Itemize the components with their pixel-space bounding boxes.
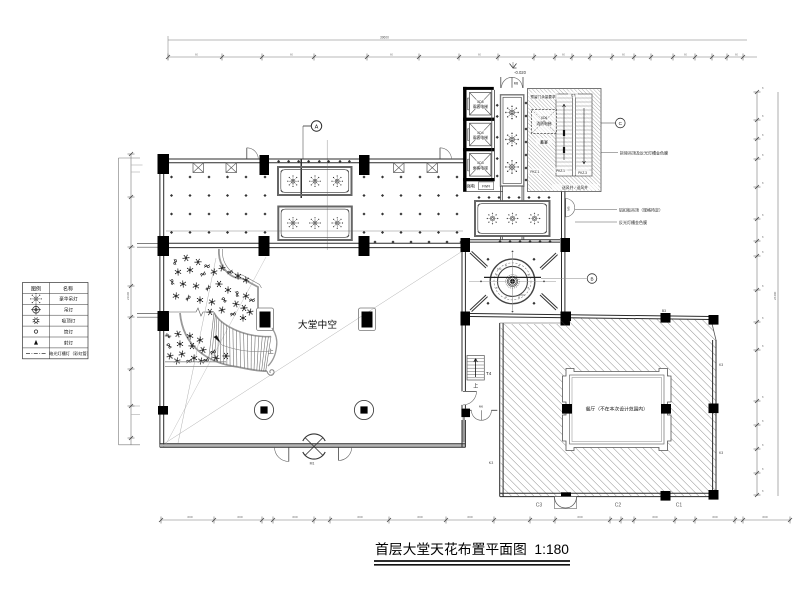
- svg-text:上: 上: [268, 348, 274, 356]
- svg-text:XD5: XD5: [477, 100, 484, 104]
- svg-text:600: 600: [497, 267, 502, 271]
- svg-text:K3: K3: [719, 451, 723, 455]
- svg-text:送风井 / 送风井: 送风井 / 送风井: [562, 185, 588, 190]
- svg-text:3600: 3600: [652, 515, 658, 519]
- svg-text:反光灯槽金色膜: 反光灯槽金色膜: [619, 219, 647, 225]
- svg-text:2800: 2800: [519, 293, 525, 297]
- svg-text:预留门余量要求: 预留门余量要求: [530, 94, 556, 99]
- svg-text:3600: 3600: [417, 515, 423, 519]
- svg-text:21100: 21100: [126, 292, 130, 300]
- svg-text:强电: 强电: [467, 183, 476, 190]
- svg-text:FWFI: FWFI: [482, 185, 490, 189]
- svg-text:乘客电梯: 乘客电梯: [473, 165, 488, 170]
- svg-text:3600: 3600: [467, 515, 473, 519]
- svg-text:筒灯: 筒灯: [64, 328, 74, 335]
- svg-text:XD6: XD6: [541, 116, 548, 120]
- svg-text:B: B: [590, 277, 593, 282]
- svg-text:3600: 3600: [762, 515, 768, 519]
- svg-text:B3: B3: [662, 309, 666, 313]
- svg-text:XD3: XD3: [477, 161, 484, 165]
- svg-text:C3: C3: [536, 503, 543, 509]
- svg-text:3600: 3600: [357, 515, 363, 519]
- svg-text:M8: M8: [514, 82, 519, 86]
- svg-text:XD4: XD4: [477, 131, 484, 135]
- svg-text:C2: C2: [615, 503, 622, 509]
- svg-text:A: A: [315, 124, 319, 130]
- svg-text:乘客电梯: 乘客电梯: [473, 135, 488, 140]
- svg-text:M5: M5: [567, 206, 571, 210]
- svg-text:PKZ.1: PKZ.1: [530, 170, 539, 174]
- svg-text:-0.020: -0.020: [514, 70, 527, 75]
- svg-text:26400: 26400: [773, 291, 777, 300]
- svg-text:M1: M1: [310, 462, 315, 466]
- svg-text:铝扣板吊顶（规格待定）: 铝扣板吊顶（规格待定）: [619, 207, 663, 213]
- svg-text:3600: 3600: [292, 515, 298, 519]
- svg-text:消防电梯: 消防电梯: [536, 121, 551, 126]
- svg-text:豪华吊灯: 豪华吊灯: [59, 296, 78, 303]
- svg-text:M6: M6: [479, 405, 483, 409]
- svg-text:3600: 3600: [237, 515, 243, 519]
- svg-text:上: 上: [473, 383, 478, 390]
- svg-text:C7: C7: [571, 93, 575, 97]
- svg-text:乘客电梯: 乘客电梯: [473, 104, 488, 109]
- svg-text:图例: 图例: [31, 286, 41, 293]
- svg-text:吊灯: 吊灯: [64, 307, 74, 314]
- svg-text:PKZ.1: PKZ.1: [556, 169, 565, 173]
- svg-text:T4: T4: [486, 371, 492, 376]
- svg-text:PKZ.3: PKZ.3: [578, 171, 587, 175]
- svg-text:K3: K3: [719, 363, 723, 367]
- svg-text:吸顶灯: 吸顶灯: [62, 317, 76, 324]
- svg-text:名称: 名称: [63, 286, 73, 293]
- svg-text:暗光灯槽灯（彩虹管）: 暗光灯槽灯（彩虹管）: [49, 350, 91, 357]
- svg-text:39600: 39600: [380, 36, 389, 40]
- svg-text:大堂中空: 大堂中空: [298, 318, 337, 331]
- svg-text:射灯: 射灯: [64, 339, 74, 346]
- svg-text:3600: 3600: [577, 515, 583, 519]
- svg-text:C1: C1: [676, 503, 683, 509]
- svg-text:K3: K3: [489, 461, 493, 465]
- svg-text:3600: 3600: [187, 515, 193, 519]
- svg-text:拆除吊顶及反光灯槽金色膜: 拆除吊顶及反光灯槽金色膜: [620, 149, 668, 155]
- svg-text:餐厅（不在本次设计范围内）: 餐厅（不在本次设计范围内）: [586, 406, 648, 413]
- svg-text:3600: 3600: [712, 515, 718, 519]
- svg-text:蓄宴: 蓄宴: [540, 138, 548, 144]
- svg-text:首层大堂天花布置平面图 1:180: 首层大堂天花布置平面图 1:180: [375, 542, 569, 557]
